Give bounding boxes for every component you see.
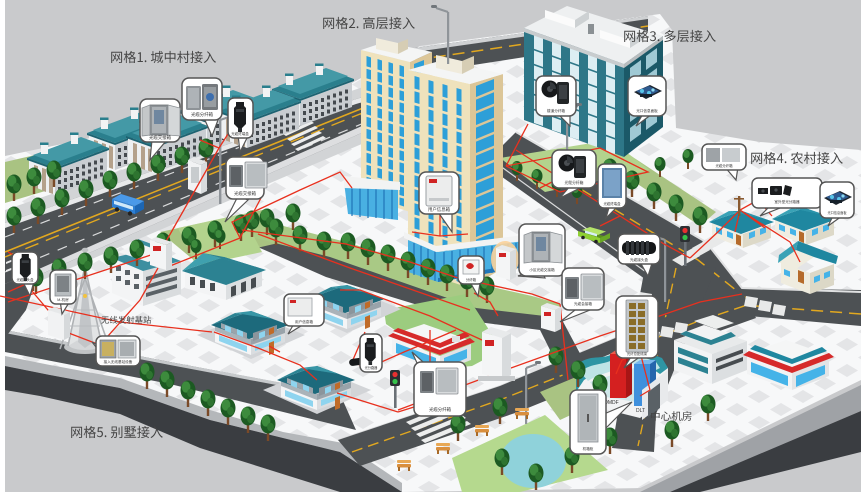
svg-text:光缆接头盒: 光缆接头盒 bbox=[630, 257, 648, 262]
svg-text:M-机房: M-机房 bbox=[57, 297, 69, 302]
svg-text:光缆分纤箱: 光缆分纤箱 bbox=[191, 111, 214, 118]
svg-text:光纤总配线架: 光纤总配线架 bbox=[627, 351, 648, 356]
svg-text:光分路器: 光分路器 bbox=[365, 365, 379, 370]
svg-text:光缆分纤箱: 光缆分纤箱 bbox=[565, 180, 584, 185]
svg-text:用户信息箱: 用户信息箱 bbox=[295, 319, 313, 324]
svg-text:分纤箱: 分纤箱 bbox=[466, 277, 477, 282]
svg-text:接入无线基站设备: 接入无线基站设备 bbox=[104, 359, 133, 364]
svg-text:机箱柜: 机箱柜 bbox=[583, 446, 594, 451]
svg-text:光缆交接箱: 光缆交接箱 bbox=[149, 134, 172, 141]
svg-text:DLT: DLT bbox=[636, 408, 645, 414]
svg-text:光缆会接箱: 光缆会接箱 bbox=[574, 301, 592, 306]
svg-text:小区光缆交接箱: 小区光缆交接箱 bbox=[529, 267, 555, 272]
svg-text:光缆终端盒: 光缆终端盒 bbox=[231, 131, 249, 136]
svg-text:光缆交接箱: 光缆交接箱 bbox=[234, 190, 257, 197]
svg-text:光口信息面板: 光口信息面板 bbox=[636, 108, 658, 113]
svg-text:光口信息面板: 光口信息面板 bbox=[827, 210, 847, 215]
svg-text:光缆接头盒: 光缆接头盒 bbox=[17, 277, 35, 282]
svg-text:光缆终端盒: 光缆终端盒 bbox=[604, 201, 622, 206]
svg-text:楼道分纤箱: 楼道分纤箱 bbox=[547, 108, 565, 113]
svg-text:光缆分纤箱: 光缆分纤箱 bbox=[716, 163, 734, 168]
svg-text:室外型光分路器: 室外型光分路器 bbox=[774, 199, 800, 204]
svg-text:光缆分纤箱: 光缆分纤箱 bbox=[429, 406, 452, 413]
svg-text:用户信息箱: 用户信息箱 bbox=[428, 206, 451, 213]
